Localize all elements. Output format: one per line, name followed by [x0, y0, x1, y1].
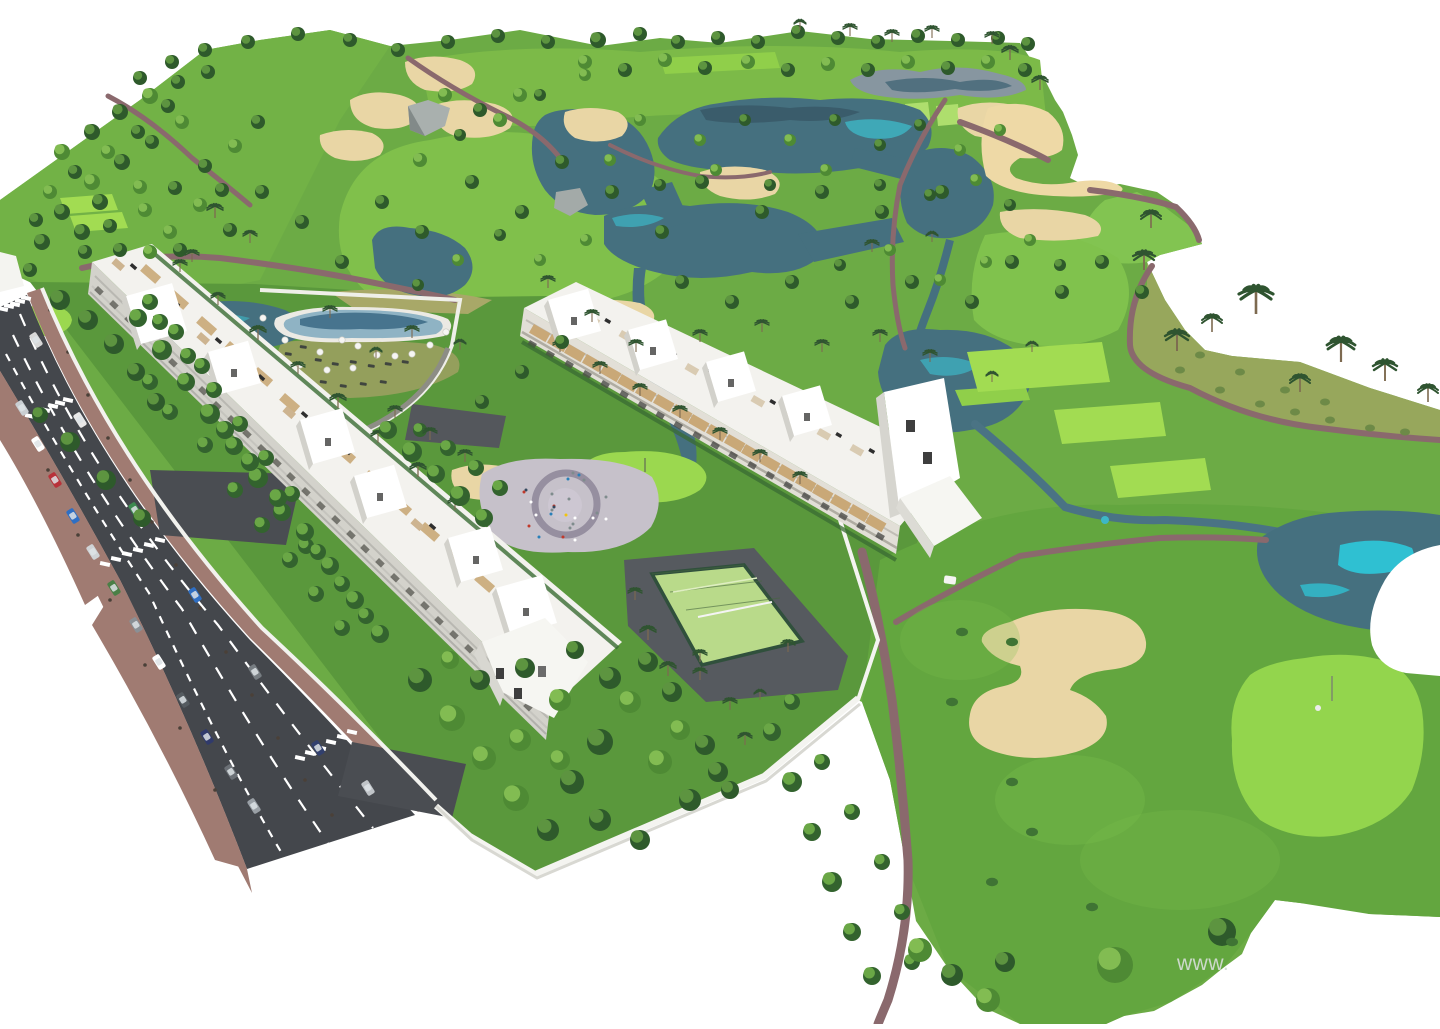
svg-text:www.: www. [1176, 952, 1229, 975]
